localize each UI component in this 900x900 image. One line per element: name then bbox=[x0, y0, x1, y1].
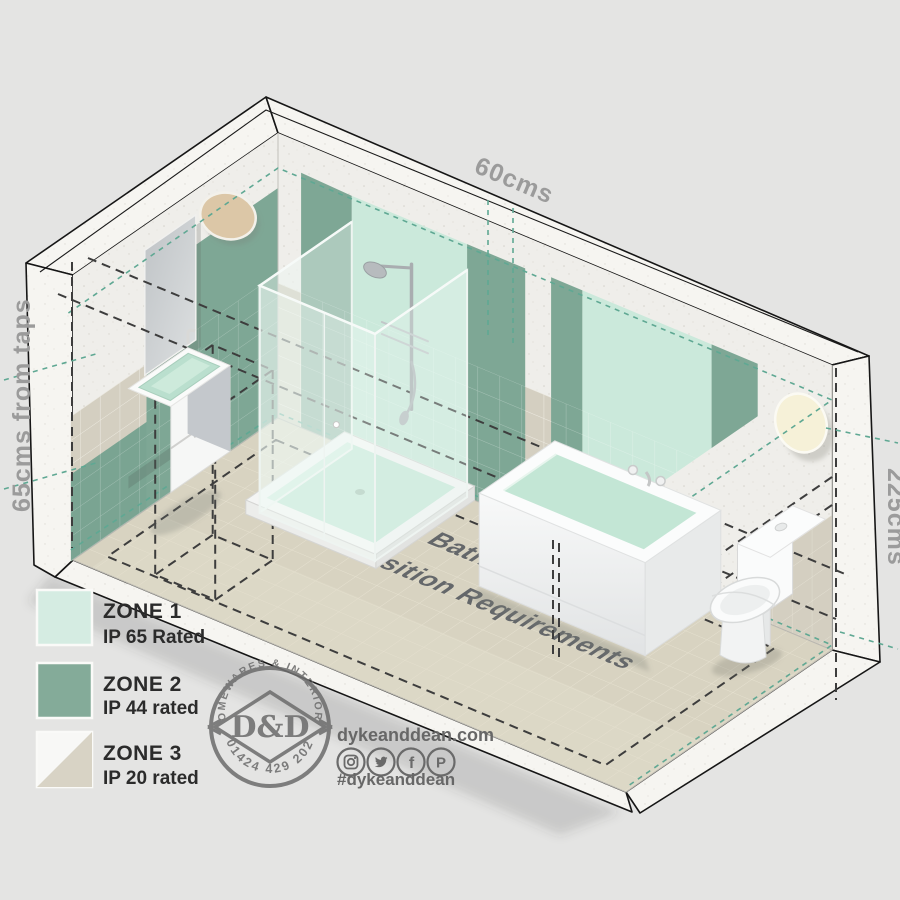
dimension-65cms: 65cms from taps bbox=[8, 298, 36, 512]
zone2-swatch bbox=[37, 663, 92, 718]
zone2-label: ZONE 2 bbox=[103, 673, 182, 696]
hashtag-text: #dykeanddean bbox=[337, 770, 455, 789]
door-handle bbox=[333, 422, 339, 428]
dimension-225cms: 225cms bbox=[882, 468, 900, 566]
website-text: dykeanddean.com bbox=[337, 725, 494, 745]
logo-monogram: D&D bbox=[230, 710, 309, 745]
zone3-label: ZONE 3 bbox=[103, 742, 182, 765]
zone3-rating: IP 20 rated bbox=[103, 768, 199, 789]
legend: ZONE 1 IP 65 Rated ZONE 2 IP 44 rated ZO… bbox=[37, 590, 205, 789]
zone1-swatch bbox=[37, 590, 92, 645]
bathroom-lighting-infographic: IP Rated Bathroom Lighting Zone Position… bbox=[0, 0, 900, 900]
bathroom-zones-diagram: IP Rated Bathroom Lighting Zone Position… bbox=[0, 0, 900, 900]
zone1-rating: IP 65 Rated bbox=[103, 627, 205, 648]
zone2-rating: IP 44 rated bbox=[103, 698, 199, 719]
zone1-label: ZONE 1 bbox=[103, 600, 182, 623]
svg-text:P: P bbox=[436, 755, 446, 772]
